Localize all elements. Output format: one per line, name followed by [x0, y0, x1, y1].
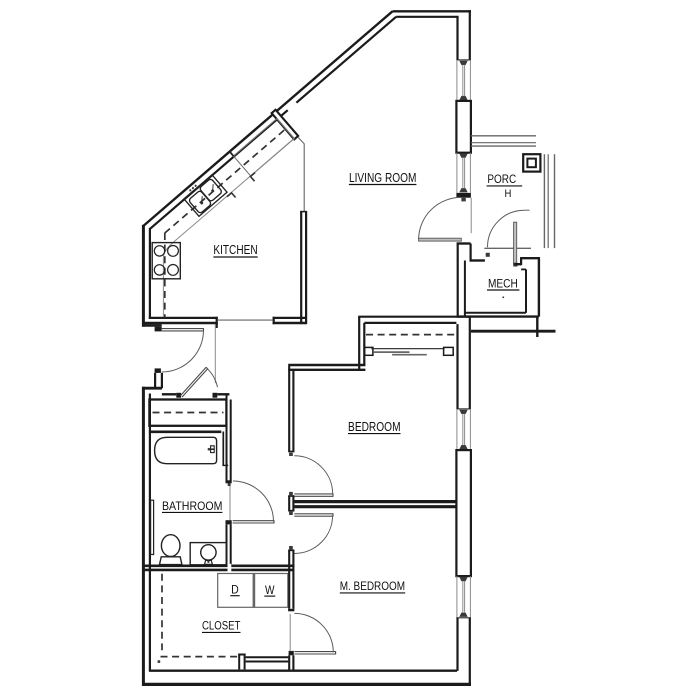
svg-text:KITCHEN: KITCHEN — [213, 242, 257, 257]
svg-text:D: D — [231, 582, 239, 596]
svg-text:BEDROOM: BEDROOM — [348, 420, 401, 434]
svg-text:PORC: PORC — [487, 172, 516, 186]
svg-text:MECH: MECH — [488, 279, 518, 291]
svg-text:W: W — [265, 583, 275, 597]
svg-text:CLOSET: CLOSET — [202, 619, 241, 633]
svg-text:LIVING ROOM: LIVING ROOM — [349, 170, 416, 185]
svg-text:H: H — [505, 188, 512, 200]
svg-text:BATHROOM: BATHROOM — [162, 499, 222, 513]
svg-text:M. BEDROOM: M. BEDROOM — [340, 579, 405, 593]
